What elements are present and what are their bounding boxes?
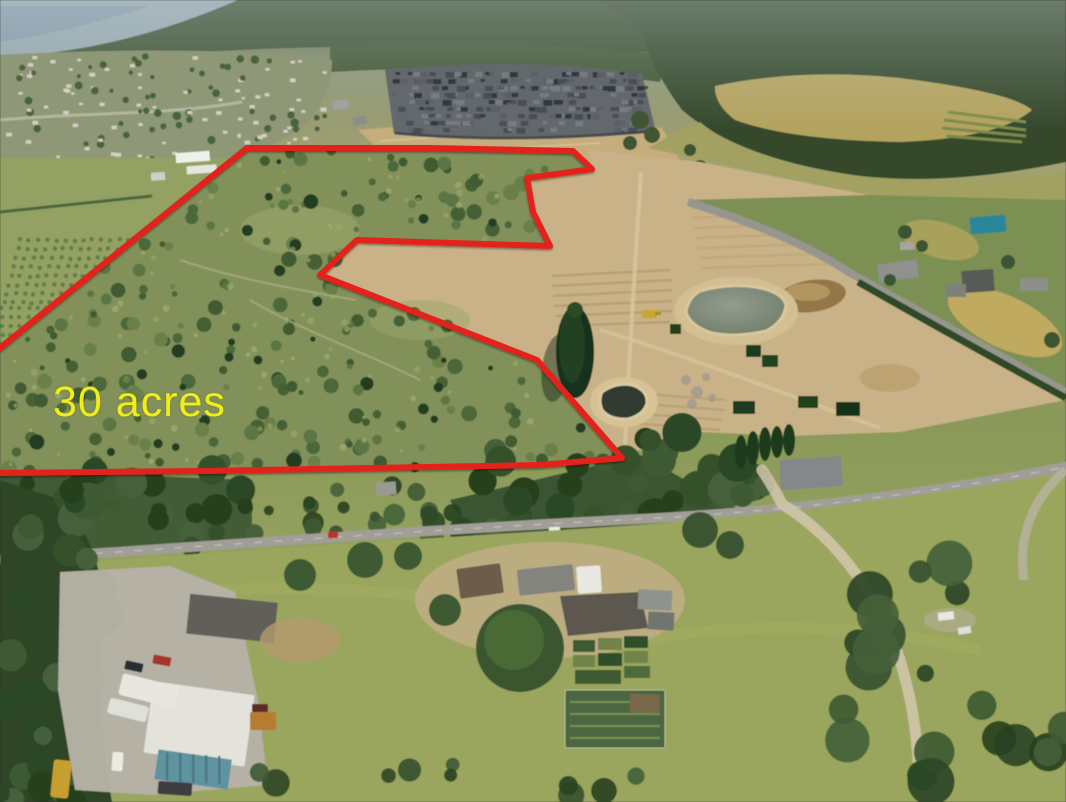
vegetation-dot bbox=[144, 351, 147, 354]
vegetation-dot bbox=[207, 136, 215, 144]
vegetation-dot bbox=[419, 214, 429, 224]
maroon-car bbox=[252, 704, 268, 712]
vegetation-dot bbox=[475, 72, 483, 77]
vegetation-dot bbox=[265, 93, 270, 96]
vegetation-dot bbox=[0, 333, 4, 337]
vegetation-dot bbox=[31, 292, 35, 296]
vegetation-dot bbox=[118, 237, 122, 241]
vegetation-dot bbox=[34, 248, 38, 252]
vegetation-dot bbox=[293, 126, 299, 132]
vegetation-dot bbox=[485, 86, 493, 91]
vegetation-dot bbox=[433, 79, 441, 84]
vegetation-dot bbox=[468, 79, 474, 83]
vegetation-dot bbox=[387, 153, 395, 161]
vegetation-dot bbox=[431, 93, 440, 99]
vegetation-dot bbox=[57, 453, 61, 457]
vegetation-dot bbox=[254, 356, 263, 365]
vegetation-dot bbox=[431, 416, 439, 424]
vegetation-dot bbox=[31, 369, 38, 376]
vegetation-dot bbox=[61, 421, 70, 430]
vegetation-dot bbox=[1034, 738, 1062, 766]
vegetation-dot bbox=[267, 423, 272, 428]
vegetation-dot bbox=[128, 434, 139, 445]
vegetation-dot bbox=[36, 274, 40, 278]
vegetation-dot bbox=[281, 252, 296, 267]
vegetation-dot bbox=[64, 274, 68, 278]
vegetation-dot bbox=[90, 311, 97, 318]
vegetation-dot bbox=[154, 317, 159, 322]
vegetation-dot bbox=[290, 247, 296, 253]
vegetation-dot bbox=[466, 204, 481, 219]
vegetation-dot bbox=[451, 206, 466, 221]
vegetation-dot bbox=[56, 156, 60, 158]
container bbox=[733, 401, 755, 414]
vegetation-dot bbox=[84, 264, 88, 268]
vegetation-dot bbox=[447, 107, 453, 111]
vegetation-dot bbox=[179, 384, 186, 391]
vegetation-dot bbox=[208, 525, 224, 541]
vegetation-dot bbox=[56, 265, 60, 269]
tree bbox=[916, 240, 928, 252]
vegetation-dot bbox=[370, 511, 380, 521]
vegetation-dot bbox=[132, 56, 138, 62]
vegetation-dot bbox=[143, 107, 150, 114]
vegetation-dot bbox=[203, 118, 208, 121]
vegetation-dot bbox=[417, 100, 421, 103]
vegetation-dot bbox=[412, 86, 418, 90]
vegetation-dot bbox=[139, 438, 151, 450]
vegetation-dot bbox=[209, 437, 219, 447]
vegetation-dot bbox=[340, 444, 347, 451]
vegetation-dot bbox=[19, 65, 25, 71]
vegetation-dot bbox=[517, 128, 526, 134]
vegetation-dot bbox=[566, 72, 571, 75]
vegetation-dot bbox=[11, 264, 15, 268]
small-shed bbox=[376, 481, 397, 495]
vegetation-dot bbox=[282, 170, 285, 173]
garden-beds bbox=[573, 636, 650, 684]
vegetation-dot bbox=[621, 100, 628, 104]
garden-shed bbox=[630, 693, 661, 713]
vegetation-dot bbox=[613, 114, 619, 118]
vegetation-dot bbox=[17, 274, 21, 278]
vegetation-dot bbox=[825, 718, 870, 763]
vegetation-dot bbox=[226, 475, 255, 504]
vegetation-dot bbox=[418, 404, 429, 415]
vegetation-dot bbox=[280, 360, 284, 364]
vegetation-dot bbox=[424, 121, 429, 124]
vegetation-dot bbox=[68, 400, 71, 403]
vegetation-dot bbox=[435, 114, 441, 118]
container bbox=[670, 324, 681, 334]
vegetation-dot bbox=[73, 273, 77, 277]
vegetation-dot bbox=[353, 384, 364, 395]
vegetation-dot bbox=[20, 265, 24, 269]
vegetation-dot bbox=[569, 100, 576, 105]
vegetation-dot bbox=[177, 322, 183, 328]
vegetation-dot bbox=[292, 206, 299, 213]
vegetation-dot bbox=[303, 137, 308, 140]
vegetation-dot bbox=[513, 360, 519, 366]
vegetation-dot bbox=[138, 154, 142, 157]
tree bbox=[682, 512, 718, 548]
vegetation-dot bbox=[170, 284, 175, 289]
vegetation-dot bbox=[207, 183, 218, 194]
vegetation-dot bbox=[461, 406, 477, 422]
vegetation-dot bbox=[25, 97, 33, 105]
vegetation-dot bbox=[290, 78, 296, 82]
vegetation-dot bbox=[186, 116, 193, 123]
vegetation-dot bbox=[125, 435, 129, 439]
vegetation-dot bbox=[98, 247, 102, 251]
vegetation-dot bbox=[138, 86, 142, 89]
vegetation-dot bbox=[513, 447, 516, 450]
vegetation-dot bbox=[151, 255, 156, 260]
vegetation-dot bbox=[154, 109, 162, 117]
vegetation-dot bbox=[65, 89, 70, 92]
vegetation-dot bbox=[413, 72, 420, 76]
vegetation-dot bbox=[79, 103, 83, 105]
vegetation-dot bbox=[40, 291, 44, 295]
vegetation-dot bbox=[490, 107, 498, 112]
tree bbox=[394, 542, 422, 570]
vegetation-dot bbox=[565, 114, 572, 119]
vegetation-dot bbox=[87, 247, 91, 251]
vegetation-dot bbox=[50, 256, 54, 260]
vegetation-dot bbox=[362, 418, 370, 426]
garden-bed bbox=[575, 670, 621, 684]
vegetation-dot bbox=[23, 292, 27, 296]
vegetation-dot bbox=[329, 227, 332, 230]
vegetation-dot bbox=[220, 233, 223, 236]
vegetation-dot bbox=[19, 92, 23, 95]
vegetation-dot bbox=[368, 308, 377, 317]
vegetation-dot bbox=[57, 403, 67, 413]
vegetation-dot bbox=[297, 99, 301, 102]
vegetation-dot bbox=[235, 89, 240, 92]
vegetation-dot bbox=[149, 418, 156, 425]
vegetation-dot bbox=[505, 435, 517, 447]
vegetation-dot bbox=[603, 86, 610, 91]
vegetation-dot bbox=[428, 100, 433, 103]
vegetation-dot bbox=[336, 224, 342, 230]
vegetation-dot bbox=[150, 75, 154, 79]
vegetation-dot bbox=[619, 107, 627, 112]
excavator-arm bbox=[655, 312, 661, 315]
vegetation-dot bbox=[95, 255, 99, 259]
vegetation-dot bbox=[263, 237, 271, 245]
red-car bbox=[328, 532, 338, 539]
vegetation-dot bbox=[11, 300, 15, 304]
vegetation-dot bbox=[512, 93, 518, 97]
vegetation-dot bbox=[224, 64, 231, 71]
vegetation-dot bbox=[111, 126, 116, 129]
vegetation-dot bbox=[386, 188, 392, 194]
vegetation-dot bbox=[400, 449, 403, 452]
vegetation-dot bbox=[322, 114, 327, 119]
vegetation-dot bbox=[475, 93, 481, 97]
vegetation-dot bbox=[287, 142, 290, 144]
vegetation-dot bbox=[574, 93, 579, 96]
vegetation-dot bbox=[238, 499, 253, 514]
vegetation-dot bbox=[153, 439, 162, 448]
vegetation-dot bbox=[265, 68, 269, 71]
vegetation-dot bbox=[293, 152, 307, 166]
vegetation-dot bbox=[187, 111, 192, 114]
vegetation-dot bbox=[268, 232, 271, 235]
rubble bbox=[702, 373, 710, 381]
vegetation-dot bbox=[538, 107, 547, 113]
vegetation-dot bbox=[574, 114, 583, 120]
vegetation-dot bbox=[16, 75, 23, 82]
vegetation-dot bbox=[443, 213, 448, 218]
vegetation-dot bbox=[219, 366, 227, 374]
vegetation-dot bbox=[628, 72, 637, 78]
vegetation-dot bbox=[106, 246, 110, 250]
vegetation-dot bbox=[466, 114, 471, 117]
vegetation-dot bbox=[223, 384, 230, 391]
vegetation-dot bbox=[138, 123, 142, 126]
rubble bbox=[691, 386, 703, 398]
white-car bbox=[111, 752, 123, 772]
vegetation-dot bbox=[81, 238, 85, 242]
vegetation-dot bbox=[55, 318, 68, 331]
vegetation-dot bbox=[447, 359, 463, 375]
vegetation-dot bbox=[32, 121, 38, 125]
vegetation-dot bbox=[52, 282, 56, 286]
vegetation-dot bbox=[434, 383, 444, 393]
vegetation-dot bbox=[463, 121, 470, 126]
vegetation-dot bbox=[499, 114, 507, 119]
vegetation-dot bbox=[108, 238, 112, 242]
brown-roof-house bbox=[456, 563, 504, 599]
vegetation-dot bbox=[505, 221, 512, 228]
terrain bbox=[0, 0, 1066, 802]
vegetation-dot bbox=[329, 347, 333, 351]
vegetation-dot bbox=[481, 79, 485, 82]
conifer bbox=[771, 426, 783, 458]
vegetation-dot bbox=[224, 353, 233, 362]
vegetation-dot bbox=[193, 333, 197, 337]
vegetation-dot bbox=[287, 111, 294, 118]
vegetation-dot bbox=[33, 125, 41, 133]
vegetation-dot bbox=[138, 73, 142, 76]
garden-bed bbox=[573, 655, 595, 667]
vegetation-dot bbox=[570, 79, 575, 82]
vegetation-dot bbox=[28, 63, 33, 66]
house-roof bbox=[946, 284, 966, 297]
garden-bed bbox=[624, 666, 650, 678]
vegetation-dot bbox=[74, 264, 78, 268]
vegetation-dot bbox=[361, 437, 366, 442]
vegetation-dot bbox=[307, 318, 314, 325]
vegetation-dot bbox=[34, 394, 48, 408]
vegetation-dot bbox=[18, 514, 43, 539]
excavator bbox=[642, 310, 657, 318]
vegetation-dot bbox=[575, 121, 583, 126]
vegetation-dot bbox=[637, 86, 644, 91]
vegetation-dot bbox=[425, 107, 430, 110]
vegetation-dot bbox=[13, 256, 17, 260]
vegetation-dot bbox=[494, 194, 499, 199]
vegetation-dot bbox=[14, 291, 18, 295]
vegetation-dot bbox=[69, 68, 73, 70]
vegetation-dot bbox=[88, 65, 92, 69]
vegetation-dot bbox=[512, 79, 516, 82]
vegetation-dot bbox=[396, 176, 400, 180]
vegetation-dot bbox=[29, 264, 33, 268]
vegetation-dot bbox=[554, 100, 561, 105]
vegetation-dot bbox=[242, 225, 253, 236]
vegetation-dot bbox=[290, 118, 299, 127]
vegetation-dot bbox=[639, 429, 661, 451]
vegetation-dot bbox=[639, 93, 646, 98]
vegetation-dot bbox=[237, 55, 245, 63]
vegetation-dot bbox=[244, 425, 259, 440]
vegetation-dot bbox=[84, 343, 97, 356]
vegetation-dot bbox=[420, 72, 428, 77]
vegetation-dot bbox=[485, 72, 489, 75]
vegetation-dot bbox=[367, 158, 371, 162]
vegetation-dot bbox=[446, 114, 451, 117]
vegetation-dot bbox=[662, 490, 684, 512]
vegetation-dot bbox=[26, 140, 31, 144]
tree bbox=[1001, 255, 1015, 269]
vegetation-dot bbox=[78, 247, 82, 251]
vegetation-dot bbox=[495, 100, 503, 105]
conifer bbox=[783, 424, 795, 456]
vegetation-dot bbox=[173, 111, 182, 120]
vegetation-dot bbox=[264, 505, 274, 515]
vegetation-dot bbox=[448, 79, 456, 84]
vegetation-dot bbox=[485, 446, 516, 477]
vegetation-dot bbox=[489, 100, 495, 104]
vegetation-dot bbox=[445, 100, 450, 104]
vegetation-dot bbox=[45, 237, 49, 241]
vegetation-dot bbox=[193, 411, 197, 415]
vegetation-dot bbox=[399, 158, 408, 167]
vegetation-dot bbox=[304, 194, 319, 209]
vegetation-dot bbox=[314, 115, 320, 121]
vegetation-dot bbox=[81, 377, 86, 382]
vegetation-dot bbox=[86, 256, 90, 260]
teal-roof-barn bbox=[969, 214, 1006, 234]
vegetation-dot bbox=[66, 84, 71, 87]
vegetation-dot bbox=[118, 121, 123, 126]
vegetation-dot bbox=[347, 321, 350, 324]
vegetation-dot bbox=[89, 433, 102, 446]
vegetation-dot bbox=[122, 97, 129, 104]
vegetation-dot bbox=[89, 237, 93, 241]
vegetation-dot bbox=[511, 100, 517, 104]
vegetation-dot bbox=[231, 452, 244, 465]
vegetation-dot bbox=[431, 376, 435, 380]
vegetation-dot bbox=[25, 247, 29, 251]
vegetation-dot bbox=[409, 93, 413, 96]
vegetation-dot bbox=[291, 61, 295, 64]
dirt-yard bbox=[260, 618, 340, 662]
vegetation-dot bbox=[226, 345, 235, 354]
vegetation-dot bbox=[244, 141, 250, 145]
vegetation-dot bbox=[426, 79, 433, 83]
vegetation-dot bbox=[550, 128, 557, 132]
vegetation-dot bbox=[40, 365, 45, 370]
vegetation-dot bbox=[330, 483, 344, 497]
vegetation-dot bbox=[304, 429, 318, 443]
vegetation-dot bbox=[277, 420, 288, 431]
vegetation-dot bbox=[59, 478, 84, 503]
metal-shed bbox=[648, 611, 675, 630]
vegetation-dot bbox=[616, 86, 625, 92]
vegetation-dot bbox=[130, 388, 145, 403]
vegetation-dot bbox=[100, 61, 107, 68]
vegetation-dot bbox=[154, 333, 168, 347]
vegetation-dot bbox=[267, 58, 272, 63]
vegetation-dot bbox=[730, 483, 754, 507]
vegetation-dot bbox=[216, 111, 221, 115]
vegetation-dot bbox=[559, 121, 565, 125]
house-roof bbox=[353, 116, 368, 125]
vegetation-dot bbox=[77, 74, 81, 78]
vegetation-dot bbox=[559, 776, 578, 795]
vegetation-dot bbox=[576, 423, 586, 433]
vegetation-dot bbox=[291, 356, 295, 360]
vegetation-dot bbox=[610, 79, 617, 84]
vegetation-dot bbox=[456, 189, 463, 196]
vegetation-dot bbox=[47, 264, 51, 268]
vegetation-dot bbox=[421, 114, 428, 118]
vegetation-dot bbox=[499, 121, 507, 126]
vegetation-dot bbox=[18, 237, 22, 241]
vegetation-dot bbox=[63, 111, 68, 115]
vegetation-dot bbox=[369, 178, 376, 185]
vegetation-dot bbox=[14, 677, 48, 711]
vegetation-dot bbox=[518, 100, 527, 106]
vegetation-dot bbox=[83, 141, 88, 146]
vegetation-dot bbox=[967, 691, 996, 720]
vegetation-dot bbox=[46, 342, 56, 352]
tree bbox=[716, 531, 744, 559]
vegetation-dot bbox=[139, 285, 148, 294]
vegetation-dot bbox=[407, 483, 425, 501]
vegetation-dot bbox=[172, 333, 182, 343]
vegetation-dot bbox=[276, 187, 281, 192]
vegetation-dot bbox=[456, 114, 462, 118]
soil-mound bbox=[860, 364, 920, 392]
vegetation-dot bbox=[73, 239, 77, 243]
vegetation-dot bbox=[75, 82, 83, 90]
vegetation-dot bbox=[145, 95, 150, 100]
vegetation-dot bbox=[66, 264, 70, 268]
vegetation-dot bbox=[490, 72, 495, 75]
house-roof bbox=[961, 269, 994, 293]
rubble bbox=[708, 394, 716, 402]
vegetation-dot bbox=[331, 252, 336, 257]
vegetation-dot bbox=[137, 369, 147, 379]
vegetation-dot bbox=[185, 458, 189, 462]
vegetation-dot bbox=[441, 396, 450, 405]
vegetation-dot bbox=[620, 72, 625, 75]
vegetation-dot bbox=[349, 408, 365, 424]
vegetation-dot bbox=[89, 73, 95, 77]
vegetation-dot bbox=[298, 60, 302, 62]
vegetation-dot bbox=[42, 282, 46, 286]
vegetation-dot bbox=[541, 166, 549, 174]
vegetation-dot bbox=[597, 72, 606, 78]
vegetation-dot bbox=[29, 434, 44, 449]
vegetation-dot bbox=[9, 306, 13, 310]
vegetation-dot bbox=[250, 105, 255, 108]
